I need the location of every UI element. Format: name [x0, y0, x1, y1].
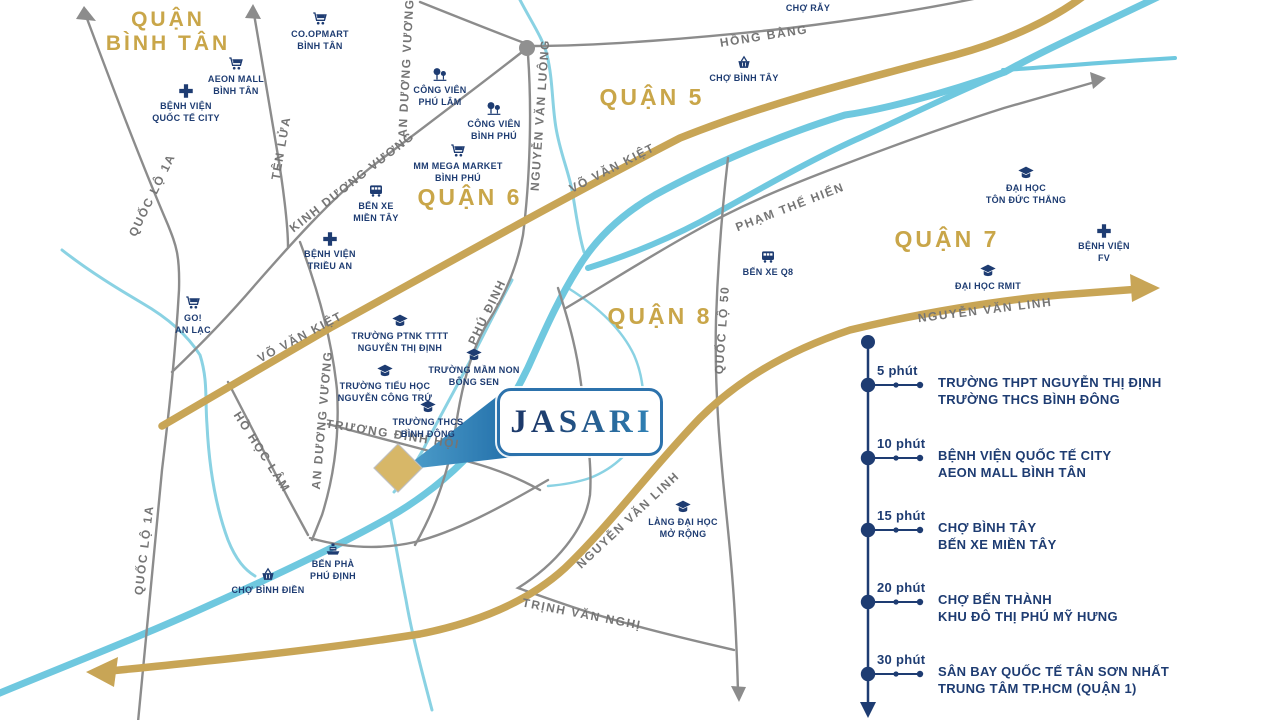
legend-time: 10 phút	[877, 436, 925, 451]
district-label-quan-binh-tan: QUẬNBÌNH TÂN	[106, 8, 230, 56]
legend-destinations: SÂN BAY QUỐC TẾ TÂN SƠN NHẤTTRUNG TÂM TP…	[938, 664, 1169, 698]
jasari-logo-text: JASARI	[506, 404, 653, 441]
legend-time: 20 phút	[877, 580, 925, 595]
district-label-quan-5: QUẬN 5	[600, 84, 705, 110]
district-label-quan-8: QUẬN 8	[608, 303, 713, 329]
junction-node	[519, 40, 535, 56]
legend-time: 5 phút	[877, 363, 918, 378]
district-label-quan-7: QUẬN 7	[895, 226, 1000, 252]
legend-time: 30 phút	[877, 652, 925, 667]
legend-destinations: CHỢ BẾN THÀNHKHU ĐÔ THỊ PHÚ MỸ HƯNG	[938, 592, 1118, 626]
jasari-site-diamond	[374, 444, 422, 492]
district-label-quan-6: QUẬN 6	[418, 184, 523, 210]
legend-destinations: BỆNH VIỆN QUỐC TẾ CITYAEON MALL BÌNH TÂN	[938, 448, 1111, 482]
rivers	[0, 0, 1175, 695]
map-infographic: QUẬNBÌNH TÂNQUẬN 5QUẬN 6QUẬN 7QUẬN 8 QUỐ…	[0, 0, 1280, 720]
legend-destinations: CHỢ BÌNH TÂYBẾN XE MIỀN TÂY	[938, 520, 1057, 554]
legend-time: 15 phút	[877, 508, 925, 523]
legend-arrow-icon	[860, 702, 876, 718]
legend-destinations: TRƯỜNG THPT NGUYỄN THỊ ĐỊNHTRƯỜNG THCS B…	[938, 375, 1162, 409]
jasari-logo-box: JASARI	[497, 388, 663, 456]
